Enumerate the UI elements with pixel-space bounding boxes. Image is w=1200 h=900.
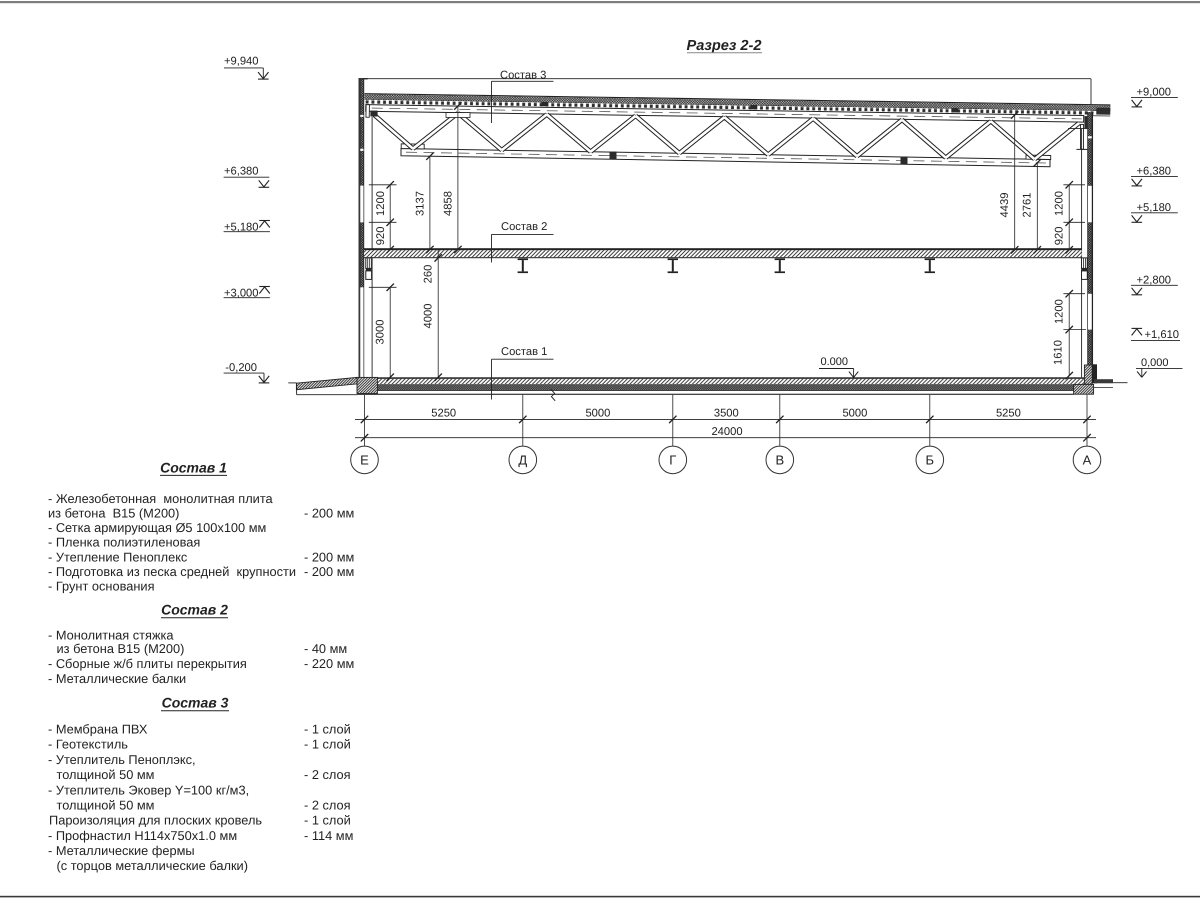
svg-text:4858: 4858: [442, 191, 454, 216]
svg-text:+9,000: +9,000: [1137, 86, 1172, 98]
svg-text:3137: 3137: [414, 191, 426, 216]
svg-text:- 1 слой: - 1 слой: [304, 737, 351, 752]
svg-text:- 40 мм: - 40 мм: [304, 641, 347, 656]
svg-text:- Металлические балки: - Металлические балки: [48, 671, 186, 686]
svg-text:Е: Е: [360, 452, 369, 467]
svg-text:5250: 5250: [431, 407, 456, 419]
svg-text:1200: 1200: [1054, 191, 1066, 216]
svg-text:3500: 3500: [714, 407, 739, 419]
svg-text:+2,800: +2,800: [1137, 274, 1172, 286]
svg-text:+6,380: +6,380: [224, 166, 259, 178]
svg-text:Состав 1: Состав 1: [160, 459, 227, 475]
svg-text:4439: 4439: [999, 193, 1011, 218]
svg-text:1200: 1200: [375, 191, 387, 216]
svg-text:5000: 5000: [842, 407, 867, 419]
svg-text:- 200 мм: - 200 мм: [304, 506, 354, 521]
svg-text:0.000: 0.000: [821, 356, 849, 368]
svg-text:А: А: [1083, 452, 1092, 467]
svg-text:Разрез 2-2: Разрез 2-2: [687, 38, 762, 54]
svg-text:+9,940: +9,940: [224, 55, 259, 67]
svg-text:24000: 24000: [711, 426, 742, 438]
svg-text:+5,180: +5,180: [1137, 202, 1172, 214]
svg-text:Состав 2: Состав 2: [161, 602, 228, 618]
svg-text:- Сборные ж/б плиты перекрытия: - Сборные ж/б плиты перекрытия: [48, 656, 247, 671]
svg-text:Г: Г: [669, 452, 676, 467]
svg-text:- Утеплитель Пеноплэкс,: - Утеплитель Пеноплэкс,: [48, 752, 196, 767]
svg-text:Состав 3: Состав 3: [162, 695, 229, 711]
svg-text:из бетона В15 (М200): из бетона В15 (М200): [57, 641, 185, 656]
svg-text:- Металлические фермы: - Металлические фермы: [48, 843, 195, 858]
svg-text:- 220 мм: - 220 мм: [304, 656, 354, 671]
svg-text:- Геотекстиль: - Геотекстиль: [48, 737, 128, 752]
svg-text:из бетона В15 (М200): из бетона В15 (М200): [48, 506, 179, 521]
svg-text:- 1 слой: - 1 слой: [304, 722, 351, 737]
svg-text:- 2 слоя: - 2 слоя: [304, 767, 351, 782]
svg-text:Состав 3: Состав 3: [500, 69, 546, 81]
svg-text:- Сетка армирующая Ø5 100х100: - Сетка армирующая Ø5 100х100 мм: [48, 520, 266, 535]
svg-text:+6,380: +6,380: [1137, 165, 1172, 177]
svg-text:- Утеплитель Эковер Y=100 кг/м: - Утеплитель Эковер Y=100 кг/м3,: [48, 783, 249, 798]
svg-text:260: 260: [423, 265, 435, 284]
svg-text:- Грунт основания: - Грунт основания: [48, 579, 155, 594]
svg-text:- Подготовка из песка средней: - Подготовка из песка средней крупности: [48, 564, 296, 579]
svg-text:3000: 3000: [375, 320, 387, 345]
svg-text:Б: Б: [926, 452, 935, 467]
svg-text:- 2 слоя: - 2 слоя: [304, 798, 351, 813]
svg-text:- Утепление Пеноплекс: - Утепление Пеноплекс: [48, 550, 188, 565]
svg-text:В: В: [775, 452, 784, 467]
svg-text:-0,200: -0,200: [225, 362, 257, 374]
svg-text:920: 920: [1054, 227, 1066, 246]
svg-text:4000: 4000: [423, 304, 435, 329]
svg-text:(с торцов металлические балки): (с торцов металлические балки): [57, 858, 248, 873]
svg-text:- 200 мм: - 200 мм: [304, 550, 354, 565]
svg-text:5000: 5000: [585, 407, 610, 419]
svg-text:Д: Д: [518, 452, 527, 467]
svg-text:- Пленка полиэтиленовая: - Пленка полиэтиленовая: [48, 535, 200, 550]
svg-text:2761: 2761: [1022, 193, 1034, 218]
svg-text:- Мембрана ПВХ: - Мембрана ПВХ: [48, 722, 148, 737]
svg-text:Состав 2: Состав 2: [501, 221, 547, 233]
svg-text:- Профнастил Н114х750х1.0 мм: - Профнастил Н114х750х1.0 мм: [48, 828, 237, 843]
svg-text:1200: 1200: [1054, 299, 1066, 324]
svg-text:+1,610: +1,610: [1145, 329, 1180, 341]
svg-text:Пароизоляция для плоских крове: Пароизоляция для плоских кровель: [49, 813, 262, 828]
svg-text:толщиной 50 мм: толщиной 50 мм: [57, 798, 155, 813]
svg-text:920: 920: [375, 227, 387, 246]
svg-text:- 200 мм: - 200 мм: [304, 564, 354, 579]
svg-text:- Железобетонная монолитная п: - Железобетонная монолитная плита: [48, 491, 274, 506]
svg-text:1610: 1610: [1053, 340, 1065, 365]
svg-text:толщиной 50 мм: толщиной 50 мм: [57, 767, 155, 782]
svg-text:0,000: 0,000: [1141, 357, 1169, 369]
svg-text:- 114 мм: - 114 мм: [304, 828, 353, 843]
svg-text:5250: 5250: [996, 407, 1021, 419]
svg-text:Состав 1: Состав 1: [501, 346, 547, 358]
svg-text:- 1 слой: - 1 слой: [304, 813, 351, 828]
